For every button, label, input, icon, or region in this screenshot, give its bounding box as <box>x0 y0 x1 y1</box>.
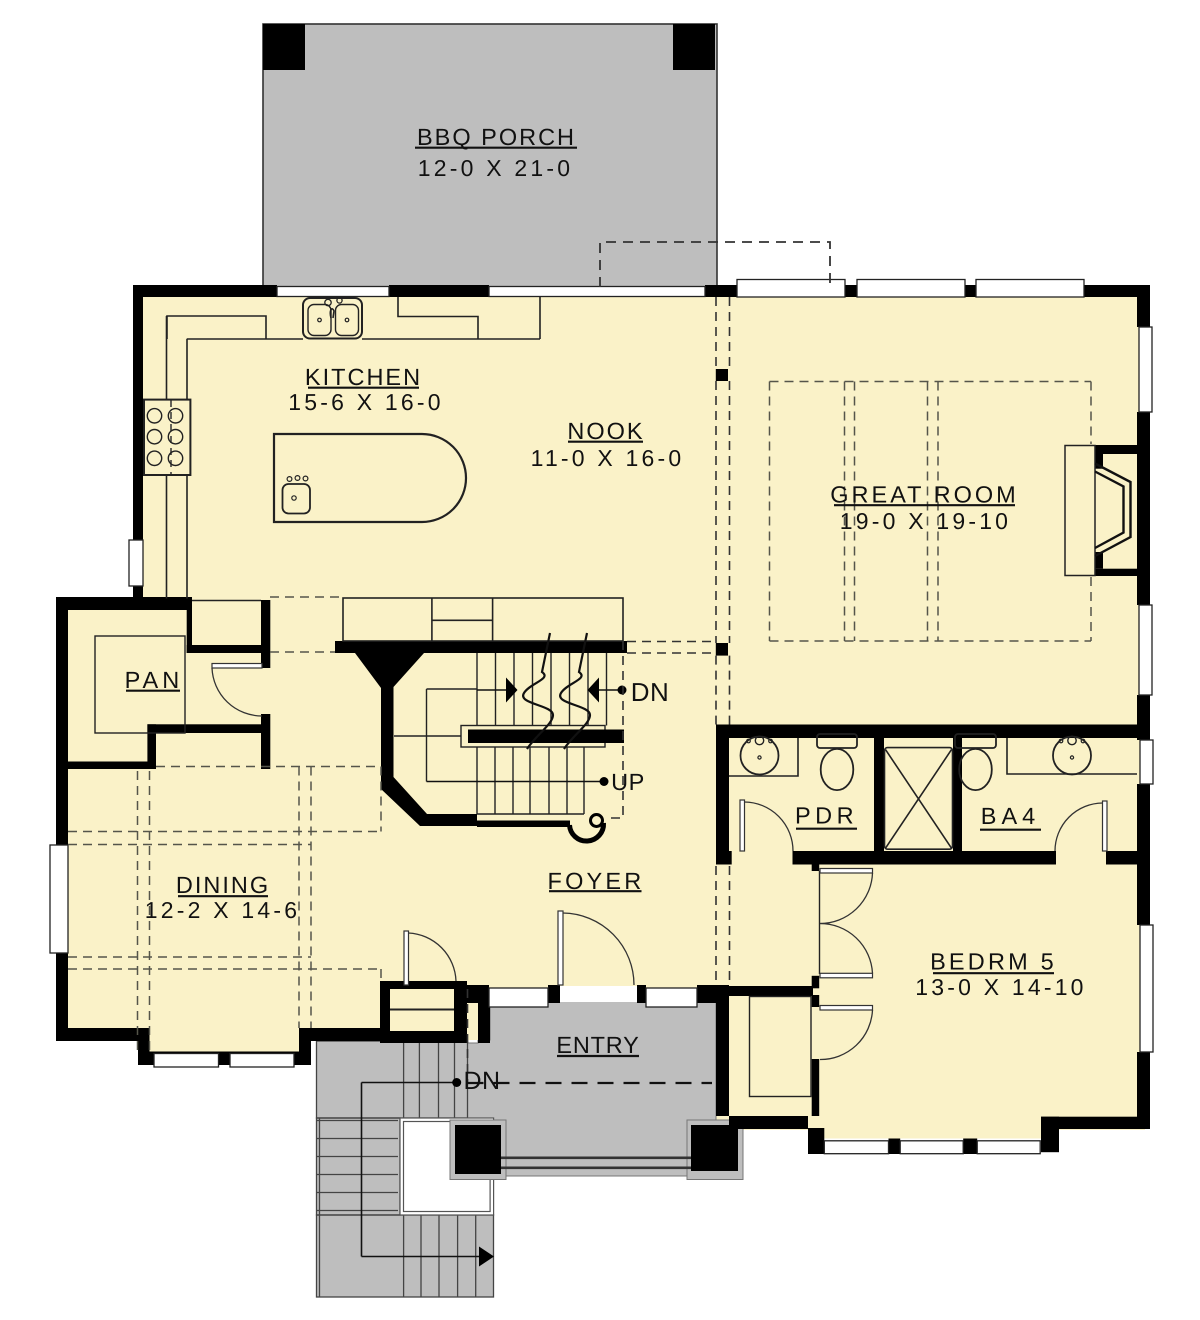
svg-text:DINING: DINING <box>176 872 270 898</box>
svg-text:ENTRY: ENTRY <box>556 1032 639 1058</box>
svg-text:12-2 X 14-6: 12-2 X 14-6 <box>145 897 300 923</box>
svg-text:15-6 X 16-0: 15-6 X 16-0 <box>288 389 443 415</box>
svg-text:BA4: BA4 <box>981 803 1040 829</box>
svg-text:BBQ PORCH: BBQ PORCH <box>417 124 576 150</box>
svg-text:PDR: PDR <box>795 803 858 829</box>
svg-text:BEDRM 5: BEDRM 5 <box>930 949 1057 975</box>
svg-text:GREAT ROOM: GREAT ROOM <box>830 482 1018 508</box>
svg-text:DN: DN <box>631 677 670 707</box>
svg-text:FOYER: FOYER <box>548 868 645 894</box>
svg-text:19-0 X 19-10: 19-0 X 19-10 <box>840 508 1011 534</box>
svg-text:KITCHEN: KITCHEN <box>305 364 422 390</box>
svg-text:PAN: PAN <box>125 667 184 693</box>
svg-text:DN: DN <box>463 1067 500 1095</box>
svg-text:11-0 X 16-0: 11-0 X 16-0 <box>531 445 685 471</box>
svg-text:NOOK: NOOK <box>567 418 644 444</box>
svg-text:13-0 X 14-10: 13-0 X 14-10 <box>915 974 1086 1000</box>
svg-text:12-0 X 21-0: 12-0 X 21-0 <box>418 155 573 181</box>
svg-text:UP: UP <box>611 769 645 795</box>
